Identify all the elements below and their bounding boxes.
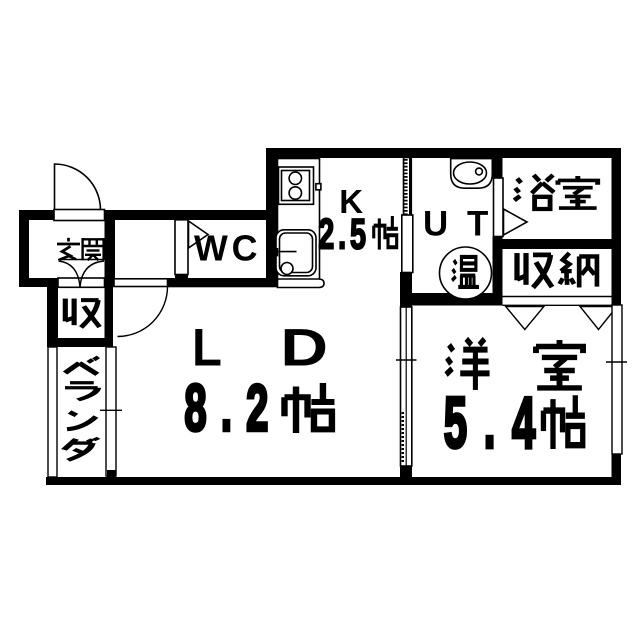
svg-text:5.4: 5.4 — [444, 383, 536, 464]
svg-text:WC: WC — [194, 229, 258, 269]
svg-text:2.5: 2.5 — [318, 210, 366, 258]
svg-text:8.2: 8.2 — [184, 372, 268, 446]
svg-text:L: L — [192, 318, 222, 377]
svg-text:D: D — [280, 318, 328, 377]
